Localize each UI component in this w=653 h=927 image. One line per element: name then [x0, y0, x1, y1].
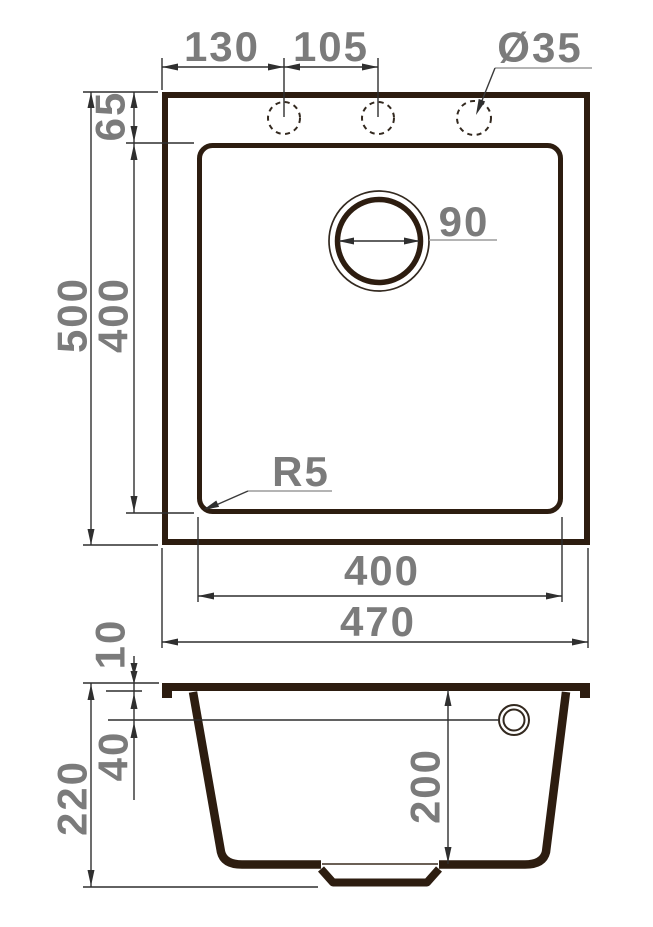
drawing-canvas: 130 105 Ø35 90 R5 400 470 65 500 400: [0, 0, 653, 927]
plan-view: [165, 95, 587, 542]
sink-dimension-diagram: 130 105 Ø35 90 R5 400 470 65 500 400: [0, 0, 653, 927]
section-view: [162, 683, 590, 883]
dim-label-400-width: 400: [344, 547, 420, 594]
dim-label-200-depth: 200: [402, 748, 449, 824]
dim-label-hole-diameter: Ø35: [497, 24, 582, 71]
dim-label-40-overflow: 40: [90, 731, 137, 782]
hole-dia-arrow: [476, 99, 485, 115]
section-dimensions: 10 40 220 200: [49, 619, 500, 887]
section-arrowheads: [88, 663, 452, 886]
section-right-wall: [439, 692, 566, 865]
section-drain-bump: [321, 869, 439, 883]
sink-outer-edge: [165, 95, 587, 542]
dim-label-90-drain: 90: [439, 198, 490, 245]
section-rim: [162, 683, 590, 698]
overflow-hole-inner: [504, 710, 525, 731]
dim-label-220-height: 220: [49, 760, 96, 836]
dim-label-65: 65: [87, 91, 134, 142]
dim-label-105: 105: [293, 23, 369, 70]
radius-callout-r5: R5: [272, 448, 330, 495]
plan-dimensions: 130 105 Ø35 90 R5 400 470 65 500 400: [49, 23, 593, 648]
dim-label-400-vertical: 400: [90, 277, 137, 353]
dim-label-500: 500: [49, 277, 96, 353]
dim-label-130: 130: [184, 23, 260, 70]
dim-label-470-width: 470: [340, 598, 416, 645]
radius-arrow: [203, 501, 219, 511]
dim-label-10-rim: 10: [87, 619, 134, 670]
section-left-wall: [193, 692, 321, 865]
faucet-hole-3: [457, 101, 491, 135]
